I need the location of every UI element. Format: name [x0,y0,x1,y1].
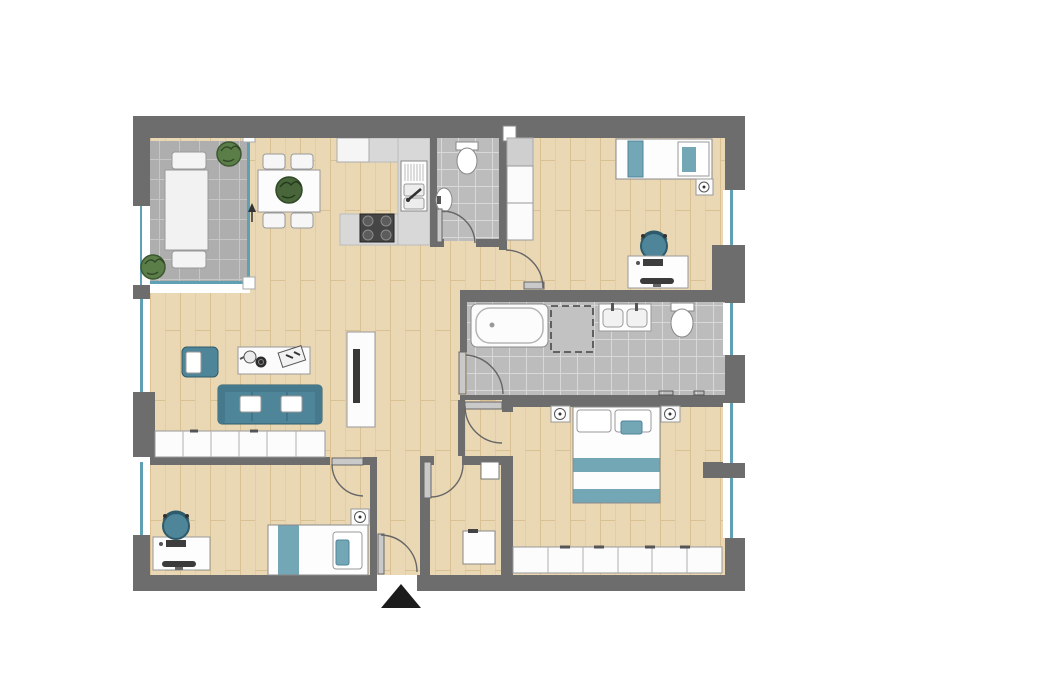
terrace-plant-top [217,142,241,166]
wall-kids-top-right [363,457,377,465]
wall-top [133,116,745,138]
storage-cabinet-handle [468,529,478,533]
terrace-gap-bottom [140,283,250,293]
tv-board [347,332,375,427]
dining-chair-4 [291,213,313,228]
wall-bottom [133,575,745,591]
bathroom-tap1 [611,303,614,311]
sofa-pillow-2 [281,396,302,412]
kids-lamp-dot [359,516,362,519]
master-bed-cushion [621,421,642,434]
kids-chair-nub1 [163,514,167,518]
stove-burner-3 [363,230,373,240]
bathroom-sink-basin2 [627,309,647,327]
terrace-glass-bottom [150,281,250,284]
dining-chair-3 [263,213,285,228]
dining-chair-1 [263,154,285,169]
wall-bathroom-bottom [513,395,725,407]
outdoor-table [165,170,208,250]
bedroom-tr-lamp-dot [703,186,706,189]
terrace-plant-bottom [141,255,165,279]
door-wc-leaf [437,209,442,242]
bedroom-tr-wardrobe-2 [507,203,533,240]
wall-bathroom-top [460,290,725,302]
wall-kitchen-wc [430,138,437,241]
wc-sink-tap [437,196,441,204]
shower [551,306,593,352]
master-bed-pillow1 [577,410,611,432]
wall-bathroom-bottom-left [460,395,513,400]
bedroom-tr-mouse [636,261,640,265]
sofa-pillow-1 [240,396,261,412]
dining-chair-2 [291,154,313,169]
wall-bathroom-left [460,302,467,352]
wall-jog-bedroom-tr [712,245,725,302]
window-master-2 [723,478,745,538]
bedroom-tr-monitor-base [653,284,661,287]
bedroom-tr-monitor [640,278,674,284]
bathtub-drain [490,323,495,328]
wall-jog-master [703,462,725,478]
master-lamp-right-dot [669,413,672,416]
bedroom-tr-bed-blanket-accent [682,147,696,172]
kitchen-drainboard [405,164,423,181]
window-master-2-glass [730,478,733,538]
floor-plan-page [0,0,1050,700]
bedroom-tr-wardrobe-top [507,138,533,166]
master-lamp-left-dot [559,413,562,416]
window-master-1 [723,403,745,463]
outdoor-chair-bottom [172,251,206,268]
window-living-left-glass [140,299,143,392]
kids-monitor-base [175,567,183,570]
window-bathroom [723,303,745,355]
wall-storage-right [501,456,513,577]
wall-wc-right [499,131,507,250]
door-bathroom-leaf [459,352,466,394]
wall-wc-bottom-right [476,239,507,247]
kids-monitor [162,561,196,567]
door-kids-leaf [332,458,363,465]
wall-left-lower [133,535,150,575]
wall-kids-right [370,465,377,577]
coffee-table-teapot [244,351,256,363]
wc-toilet-bowl [457,148,477,174]
sofa-armrest-left [218,385,225,424]
master-bed-stripe2 [573,489,660,503]
kitchen-corner-cabinet [337,138,369,162]
coffee-table-bowl [256,357,267,368]
stove-burner-2 [381,216,391,226]
shapes-layer [133,116,745,608]
kids-chair-nub2 [185,514,189,518]
storage-cabinet [463,531,495,564]
dining-centerpiece-plant [276,177,302,203]
window-bedroom-tr-glass [730,190,733,245]
stove-burner-1 [363,216,373,226]
bathroom-sink-basin1 [603,309,623,327]
window-master-1-glass [730,403,733,463]
stove-burner-4 [381,230,391,240]
wall-nook-top-right [502,400,513,412]
wall-left-chunk [133,392,155,457]
kids-mouse [159,542,163,546]
sofa-back [220,385,320,392]
floorplan-svg [0,0,1050,700]
living-sideboard [155,431,325,457]
door-bedroom-tr-leaf [524,282,544,289]
window-kids-left-glass [140,462,143,535]
wall-left-stub [133,285,150,299]
terrace-post-bottom [243,277,255,289]
wall-nook-left [458,412,465,456]
armchair-cushion [186,352,201,373]
front-door-gap [377,575,417,591]
kids-bed-cushion [336,540,349,565]
tv-screen [353,349,360,403]
bedroom-tr-chair-nub1 [641,234,645,238]
window-bedroom-tr [723,190,745,245]
door-master-leaf [465,402,502,409]
master-bed-stripe1 [573,458,660,472]
kids-bed-stripe [278,525,299,575]
door-front-leaf [378,534,384,574]
kids-keyboard [166,540,186,547]
wall-nook-top-left [458,400,465,412]
kitchen-faucet-base [406,198,410,202]
window-bathroom-glass [730,303,733,355]
wall-left-terrace [133,138,150,206]
bathroom-toilet-bowl [671,309,693,337]
bedroom-tr-chair-nub2 [663,234,667,238]
bedroom-tr-bed-pillow [628,141,643,177]
bedroom-tr-wardrobe-1 [507,166,533,203]
outdoor-chair-top [172,152,206,169]
sofa-armrest-right [315,385,322,424]
storage-niche [481,462,499,479]
terrace-railing-left-glass [140,206,142,285]
door-storage-leaf [424,462,431,498]
bedroom-tr-keyboard [643,259,663,266]
wall-kids-top-left [150,457,330,465]
bathroom-tap2 [635,303,638,311]
